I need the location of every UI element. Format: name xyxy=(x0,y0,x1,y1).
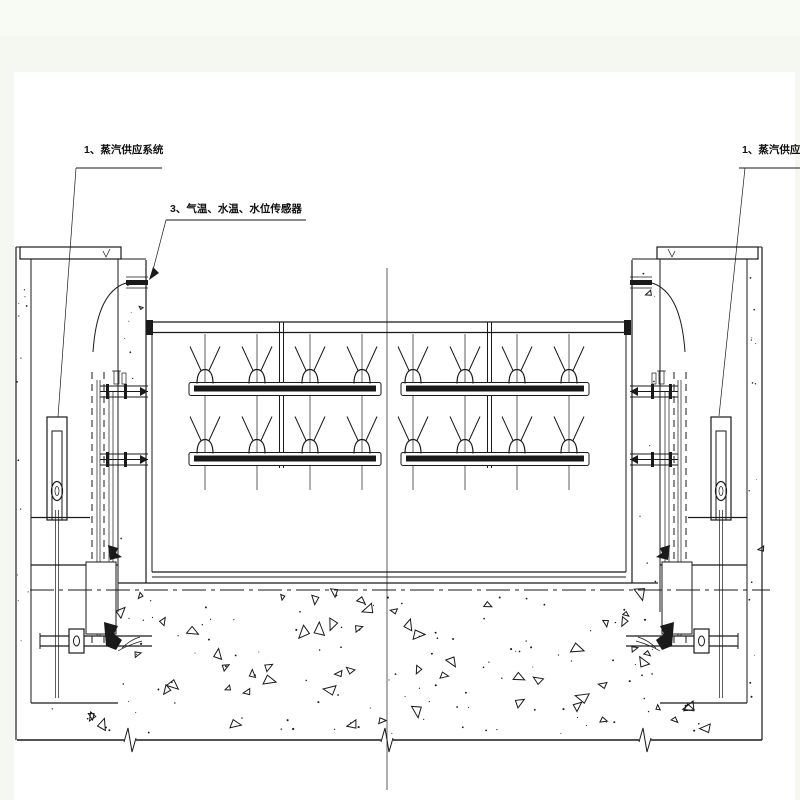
concrete-dot xyxy=(120,538,122,540)
concrete-dot xyxy=(20,508,21,509)
concrete-dot xyxy=(281,728,282,729)
concrete-dot xyxy=(17,574,18,575)
concrete-dot xyxy=(534,709,536,711)
concrete-dot xyxy=(644,619,646,621)
concrete-dot xyxy=(754,655,755,656)
concrete-dot xyxy=(515,651,516,652)
concrete-dot xyxy=(208,639,210,641)
concrete-dot xyxy=(202,624,203,625)
concrete-dot xyxy=(623,609,625,611)
concrete-dot xyxy=(562,708,564,710)
concrete-dot xyxy=(140,643,142,645)
concrete-dot xyxy=(753,309,755,311)
concrete-dot xyxy=(336,594,338,596)
concrete-dot xyxy=(629,680,631,682)
concrete-dot xyxy=(16,381,18,383)
concrete-dot xyxy=(18,303,19,304)
header-corner-block xyxy=(146,320,153,335)
concrete-dot xyxy=(431,653,433,655)
concrete-dot xyxy=(28,591,29,592)
concrete-dot xyxy=(755,343,756,344)
concrete-dot xyxy=(751,696,753,698)
concrete-dot xyxy=(571,660,572,661)
concrete-dot xyxy=(150,600,151,601)
concrete-dot xyxy=(305,680,307,682)
concrete-dot xyxy=(364,604,366,606)
concrete-dot xyxy=(24,296,25,297)
concrete-dot xyxy=(233,619,234,620)
canvas-band xyxy=(0,0,800,36)
concrete-dot xyxy=(654,296,655,297)
concrete-dot xyxy=(612,659,614,661)
concrete-dot xyxy=(751,337,752,338)
concrete-dot xyxy=(152,617,153,618)
concrete-dot xyxy=(194,653,195,654)
concrete-dot xyxy=(319,649,321,651)
concrete-dot xyxy=(295,629,297,631)
concrete-dot xyxy=(225,666,227,668)
concrete-dot xyxy=(358,726,360,728)
concrete-dot xyxy=(452,638,454,640)
concrete-dot xyxy=(653,381,655,383)
concrete-dot xyxy=(748,599,750,601)
concrete-dot xyxy=(560,733,561,734)
concrete-dot xyxy=(341,627,343,629)
concrete-dot xyxy=(177,635,178,636)
concrete-dot xyxy=(205,606,207,608)
concrete-dot xyxy=(655,581,657,583)
concrete-dot xyxy=(388,679,389,680)
concrete-dot xyxy=(543,604,545,606)
concrete-dot xyxy=(18,315,19,316)
concrete-dot xyxy=(499,596,501,598)
concrete-dot xyxy=(132,378,133,379)
concrete-dot xyxy=(648,711,649,712)
concrete-dot xyxy=(287,719,289,721)
concrete-dot xyxy=(241,717,243,719)
concrete-dot xyxy=(750,277,752,279)
concrete-dot xyxy=(435,684,437,686)
concrete-dot xyxy=(17,459,19,461)
concrete-dot xyxy=(644,698,645,699)
concrete-dot xyxy=(292,728,294,730)
concrete-dot xyxy=(615,622,616,623)
concrete-dot xyxy=(456,706,458,708)
concrete-dot xyxy=(488,661,489,662)
label-steam-right-text: 1、蒸汽供应系统 xyxy=(742,143,800,156)
concrete-dot xyxy=(123,683,125,685)
concrete-dot xyxy=(641,675,643,677)
concrete-dot xyxy=(391,733,392,734)
concrete-dot xyxy=(258,651,259,652)
concrete-dot xyxy=(423,719,424,720)
concrete-dot xyxy=(519,651,521,653)
concrete-dot xyxy=(756,479,757,480)
concrete-dot xyxy=(108,729,110,731)
concrete-dot xyxy=(21,640,22,641)
concrete-dot xyxy=(419,688,420,689)
concrete-dot xyxy=(143,620,144,621)
concrete-dot xyxy=(129,351,131,353)
concrete-dot xyxy=(590,630,591,631)
concrete-dot xyxy=(496,729,497,730)
concrete-dot xyxy=(646,562,647,563)
concrete-dot xyxy=(395,673,397,675)
engineering-drawing: 1、蒸汽供应系统 3、气温、水温、水位传感器 1、蒸汽供应系统 xyxy=(0,0,800,800)
concrete-dot xyxy=(317,701,319,703)
concrete-dot xyxy=(387,597,389,599)
concrete-dot xyxy=(639,516,640,517)
concrete-dot xyxy=(401,603,403,605)
concrete-dot xyxy=(465,692,467,694)
concrete-dot xyxy=(643,273,645,275)
concrete-dot xyxy=(127,285,128,286)
concrete-dot xyxy=(483,618,485,620)
concrete-dot xyxy=(526,640,527,641)
concrete-dot xyxy=(370,708,371,709)
label-sensors-text: 3、气温、水温、水位传感器 xyxy=(170,202,302,215)
concrete-dot xyxy=(128,701,129,702)
concrete-dot xyxy=(135,712,136,713)
concrete-dot xyxy=(210,619,211,620)
concrete-dot xyxy=(350,722,351,723)
concrete-dot xyxy=(483,666,485,668)
concrete-dot xyxy=(124,338,125,339)
concrete-dot xyxy=(749,490,750,491)
concrete-dot xyxy=(435,632,437,634)
concrete-dot xyxy=(118,641,119,642)
concrete-dot xyxy=(26,305,28,307)
concrete-dot xyxy=(87,718,89,720)
concrete-dot xyxy=(52,708,53,709)
concrete-dot xyxy=(530,646,532,648)
concrete-dot xyxy=(693,730,695,732)
concrete-dot xyxy=(128,618,129,619)
header-corner-block xyxy=(624,320,631,335)
concrete-dot xyxy=(18,600,19,601)
concrete-dot xyxy=(698,723,700,725)
concrete-dot xyxy=(635,664,636,665)
concrete-dot xyxy=(462,726,464,728)
concrete-dot xyxy=(751,581,753,583)
concrete-dot xyxy=(532,666,533,667)
concrete-dot xyxy=(755,383,756,384)
screenshot-stage: 1、蒸汽供应系统 3、气温、水温、水位传感器 1、蒸汽供应系统 xyxy=(0,0,800,800)
concrete-dot xyxy=(340,646,342,648)
concrete-dot xyxy=(174,702,175,703)
concrete-dot xyxy=(373,605,374,606)
concrete-dot xyxy=(526,598,528,600)
concrete-dot xyxy=(577,717,578,718)
concrete-dot xyxy=(651,673,653,675)
concrete-dot xyxy=(299,611,301,613)
concrete-dot xyxy=(501,677,502,678)
concrete-dot xyxy=(148,732,150,734)
concrete-dot xyxy=(437,637,439,639)
concrete-dot xyxy=(652,649,653,650)
concrete-dot xyxy=(510,648,512,650)
concrete-dot xyxy=(649,445,650,446)
concrete-dot xyxy=(751,339,752,340)
concrete-dot xyxy=(558,654,559,655)
concrete-dot xyxy=(131,312,132,313)
concrete-dot xyxy=(235,654,237,656)
concrete-dot xyxy=(468,707,469,708)
label-steam-left-text: 1、蒸汽供应系统 xyxy=(84,143,164,156)
concrete-dot xyxy=(24,289,25,290)
concrete-dot xyxy=(136,654,137,655)
concrete-dot xyxy=(337,694,339,696)
concrete-dot xyxy=(752,382,754,384)
concrete-dot xyxy=(613,721,615,723)
concrete-dot xyxy=(405,696,406,697)
concrete-dot xyxy=(485,730,487,732)
concrete-dot xyxy=(157,689,159,691)
concrete-dot xyxy=(749,682,751,684)
concrete-dot xyxy=(419,635,420,636)
concrete-dot xyxy=(128,321,129,322)
concrete-dot xyxy=(586,725,587,726)
concrete-dot xyxy=(429,701,430,702)
concrete-dot xyxy=(20,358,21,359)
concrete-dot xyxy=(334,729,335,730)
